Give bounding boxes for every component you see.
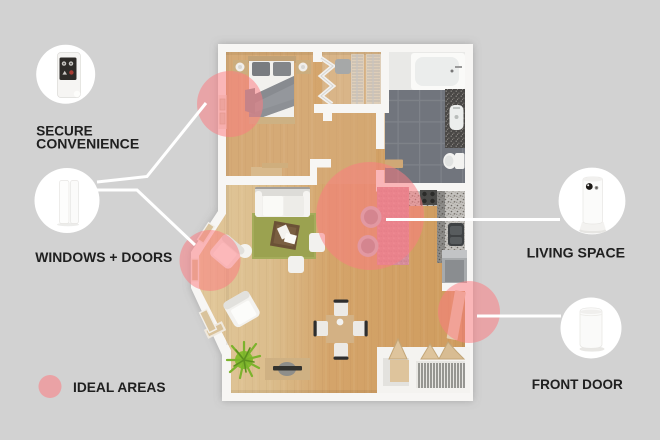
svg-text:FRONT DOOR: FRONT DOOR — [532, 376, 623, 392]
svg-text:LIVING SPACE: LIVING SPACE — [527, 245, 626, 261]
svg-text:IDEAL AREAS: IDEAL AREAS — [73, 379, 166, 395]
svg-text:CONVENIENCE: CONVENIENCE — [36, 136, 139, 152]
svg-text:WINDOWS + DOORS: WINDOWS + DOORS — [35, 249, 172, 265]
